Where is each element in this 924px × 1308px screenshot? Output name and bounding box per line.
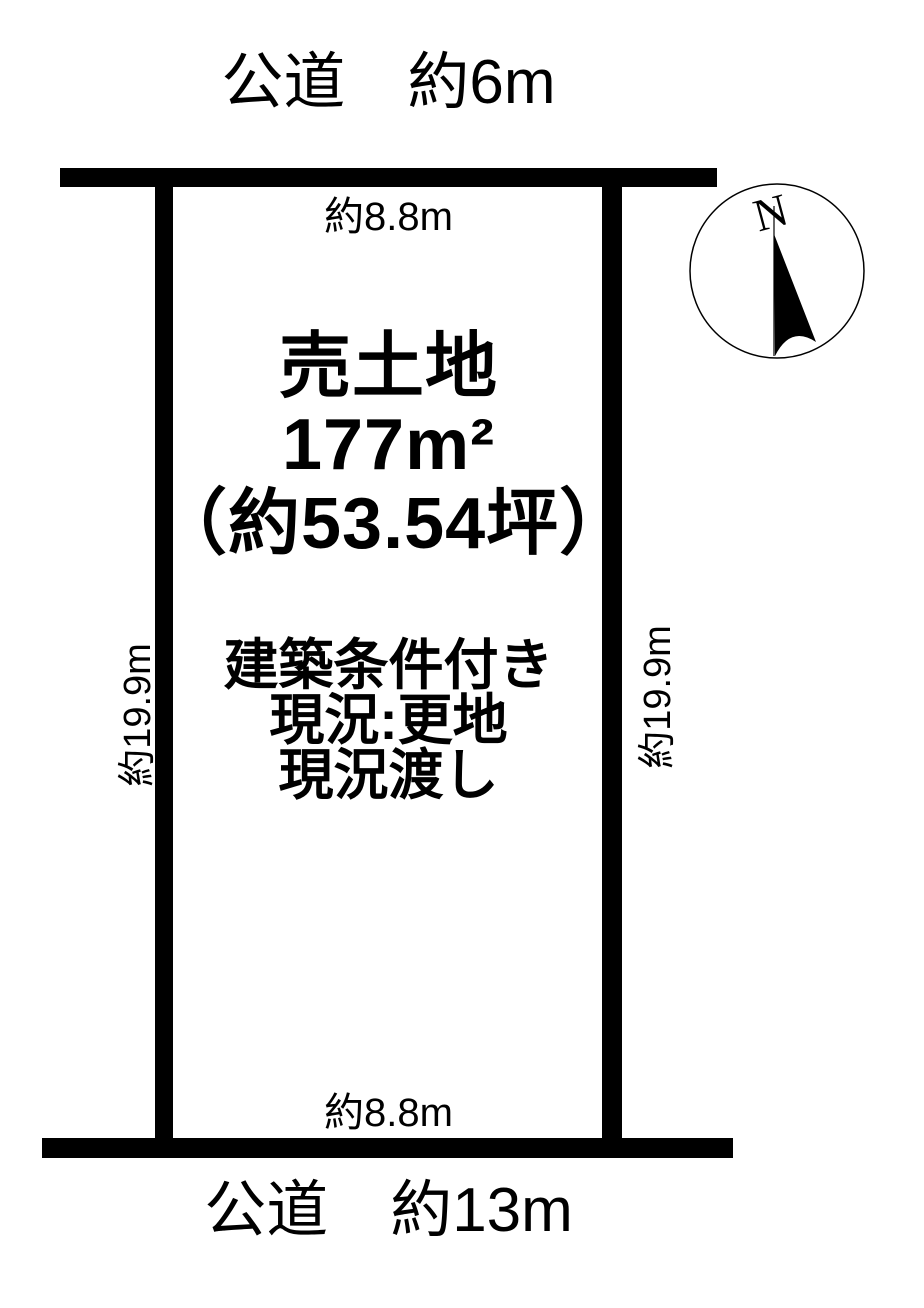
depth-right-label: 約19.9m: [631, 612, 675, 782]
note-building-conditions: 建築条件付き: [155, 638, 622, 693]
note-handover: 現況渡し: [155, 748, 622, 803]
plot-area-tsubo: （約53.54坪）: [155, 485, 622, 563]
bottom-road-label: 公道 約13m: [155, 1180, 622, 1242]
frontage-bottom-label: 約8.8m: [155, 1093, 622, 1133]
road-line-bottom: [42, 1138, 733, 1158]
depth-left-label: 約19.9m: [111, 630, 155, 800]
compass: N: [688, 182, 866, 360]
frontage-top-label: 約8.8m: [155, 197, 622, 237]
land-plot-diagram: 公道 約6m N 約8.8m 売土地 177m² （約53.54坪） 建築条件付…: [0, 0, 924, 1308]
top-road-label: 公道 約6m: [155, 52, 622, 114]
plot-type-label: 売土地: [155, 328, 622, 406]
plot-title-block: 売土地 177m² （約53.54坪）: [155, 328, 622, 563]
plot-area-sqm: 177m²: [155, 406, 622, 484]
plot-notes-block: 建築条件付き 現況:更地 現況渡し: [155, 638, 622, 803]
note-current-state: 現況:更地: [155, 693, 622, 748]
